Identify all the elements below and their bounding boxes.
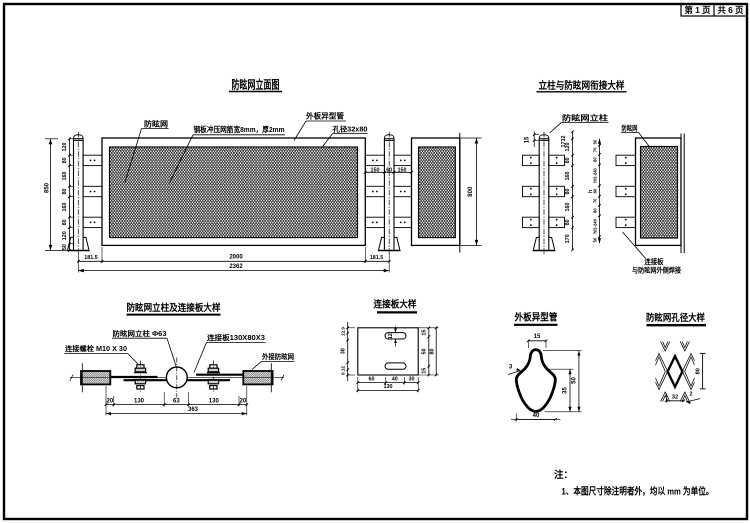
svg-text:160: 160 [565,202,571,211]
svg-text:130: 130 [384,384,393,390]
svg-text:防眩网立柱及连接板大样: 防眩网立柱及连接板大样 [127,302,221,314]
svg-text:32: 32 [672,394,678,400]
svg-text:38: 38 [341,348,347,354]
svg-text:850: 850 [44,182,50,193]
svg-text:外板异型管: 外板异型管 [306,110,345,120]
svg-text:1732: 1732 [561,136,567,148]
svg-text:连接板大样: 连接板大样 [374,298,417,310]
svg-text:2: 2 [689,391,692,397]
svg-text:80: 80 [695,368,701,374]
svg-text:钢板冲压网筋宽8mm，厚2mm: 钢板冲压网筋宽8mm，厚2mm [194,124,285,134]
svg-text:40: 40 [533,413,540,419]
svg-text:160: 160 [62,171,68,180]
svg-text:防眩网立面图: 防眩网立面图 [232,78,280,92]
svg-text:12: 12 [388,333,394,339]
svg-text:50: 50 [593,237,598,242]
svg-text:70: 70 [593,198,598,203]
svg-text:120: 120 [62,231,68,240]
svg-text:60: 60 [386,167,392,173]
svg-text:防眩网孔径大样: 防眩网孔径大样 [646,312,705,324]
svg-text:15: 15 [525,136,531,143]
svg-text:63: 63 [173,398,180,404]
svg-text:防眩网: 防眩网 [622,124,638,133]
svg-text:70: 70 [593,147,598,152]
svg-text:防眩网: 防眩网 [144,119,169,129]
svg-text:130: 130 [134,398,145,404]
svg-text:连接板: 连接板 [645,257,665,266]
svg-text:80: 80 [62,219,68,225]
svg-text:120: 120 [62,143,68,152]
svg-text:防眩网立柱: 防眩网立柱 [562,112,609,122]
svg-text:80: 80 [593,157,598,162]
svg-text:共 6 页: 共 6 页 [718,5,744,15]
svg-text:2362: 2362 [229,264,243,270]
svg-text:363: 363 [188,407,199,413]
svg-text:80: 80 [62,189,68,195]
svg-text:80: 80 [593,208,598,213]
svg-text:50: 50 [422,349,428,355]
svg-text:181.5: 181.5 [84,255,98,261]
svg-text:30: 30 [409,376,415,382]
svg-text:15: 15 [534,334,541,340]
svg-text:h/2-240: h/2-240 [593,167,598,182]
svg-text:9.12: 9.12 [341,366,346,375]
svg-text:80: 80 [565,157,571,163]
svg-text:20: 20 [107,398,114,404]
svg-text:立柱与防眩网衔接大样: 立柱与防眩网衔接大样 [539,79,625,92]
svg-text:60: 60 [369,376,375,382]
svg-text:15: 15 [422,368,428,374]
svg-text:1、本图尺寸除注明者外，均以 mm 为单位。: 1、本图尺寸除注明者外，均以 mm 为单位。 [562,486,714,498]
svg-text:80: 80 [429,349,435,355]
svg-text:连接板130X80X3: 连接板130X80X3 [207,333,265,342]
svg-text:连接螺栓 M10 X 30: 连接螺栓 M10 X 30 [65,344,127,353]
svg-text:160: 160 [62,202,68,211]
svg-text:150: 150 [371,167,380,173]
svg-text:20: 20 [240,398,247,404]
svg-text:35: 35 [563,387,569,394]
svg-text:注：: 注： [554,469,573,481]
svg-text:防眩网立柱 Φ63: 防眩网立柱 Φ63 [113,329,167,338]
svg-text:外接防眩网: 外接防眩网 [262,352,294,361]
svg-text:12.9: 12.9 [341,327,346,336]
svg-text:50: 50 [572,377,578,384]
svg-text:181.5: 181.5 [370,255,384,261]
svg-text:h/2-240: h/2-240 [593,218,598,233]
svg-text:孔径32x80: 孔径32x80 [333,124,368,133]
svg-text:150: 150 [398,167,407,173]
svg-text:外板异型管: 外板异型管 [514,312,558,324]
svg-text:第 1 页: 第 1 页 [685,5,711,15]
svg-text:130: 130 [209,398,220,404]
svg-text:50: 50 [593,139,598,144]
svg-text:15: 15 [422,330,428,336]
svg-text:160: 160 [565,171,571,180]
svg-text:170: 170 [565,234,571,243]
svg-text:80: 80 [565,219,571,225]
svg-text:与防眩网外侧焊接: 与防眩网外侧焊接 [632,266,681,275]
svg-text:50: 50 [62,244,68,250]
svg-text:40: 40 [392,376,398,382]
svg-text:80: 80 [565,189,571,195]
svg-text:h: h [588,190,594,193]
svg-text:800: 800 [468,186,474,197]
svg-text:2000: 2000 [229,255,243,261]
svg-text:80: 80 [62,157,68,163]
